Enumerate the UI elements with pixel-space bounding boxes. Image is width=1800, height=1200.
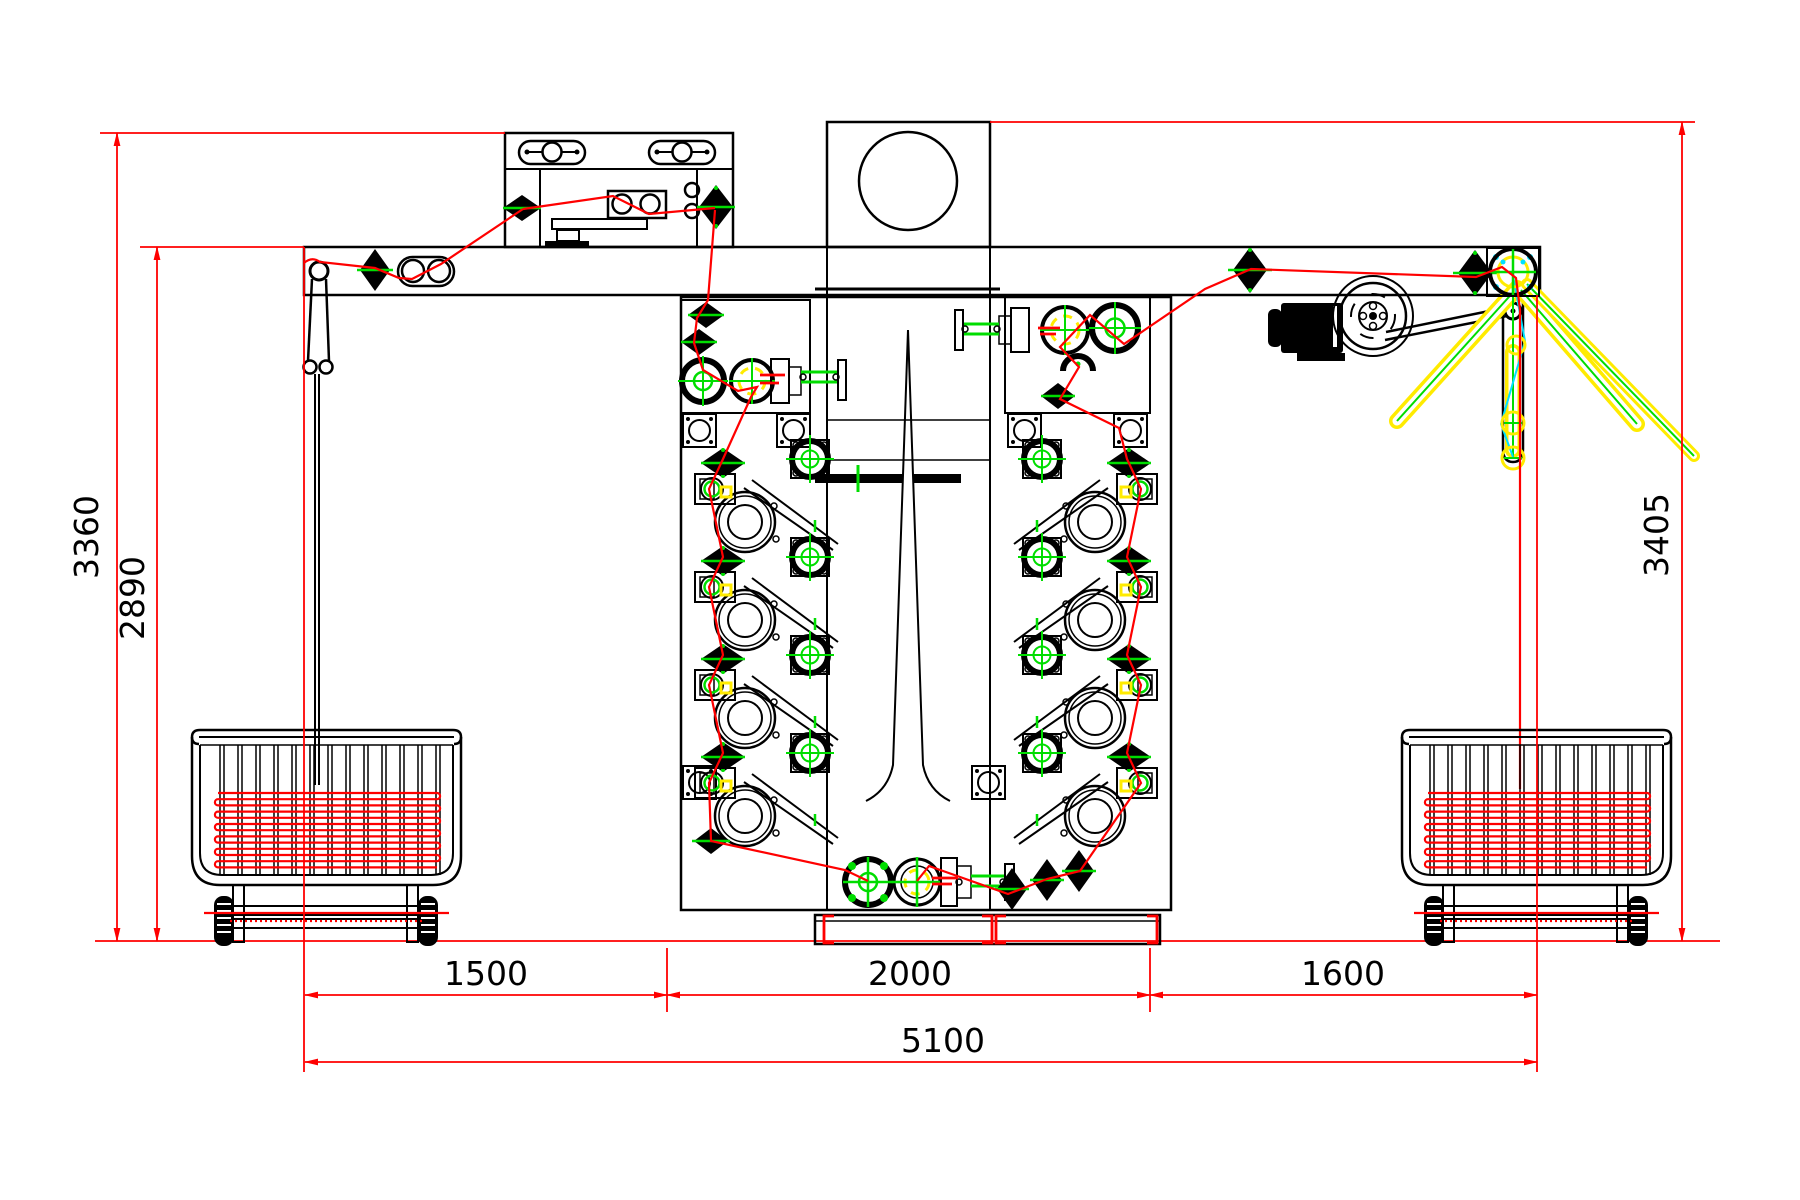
corner-pulley: [1487, 248, 1539, 296]
creel-box: [503, 133, 735, 247]
hanger-pole: [304, 262, 333, 785]
left-squeeze-unit: [678, 302, 846, 406]
machine-foot: [982, 916, 992, 943]
top-beam: [304, 247, 1540, 462]
right-squeeze-unit: [955, 302, 1141, 409]
machine-foot: [996, 916, 1006, 943]
dim-label-2000: 2000: [868, 954, 952, 993]
base-rail: [815, 915, 1160, 944]
drawing-page: 3360 2890 3405 1500 2000 1600 5100: [0, 0, 1800, 1200]
dim-label-5100: 5100: [901, 1021, 985, 1060]
left-cart: [192, 730, 461, 946]
dim-label-1500: 1500: [444, 954, 528, 993]
machine-elevation-drawing: 3360 2890 3405 1500 2000 1600 5100: [0, 0, 1800, 1200]
machine-foot: [1147, 916, 1157, 943]
fan-circle: [859, 132, 957, 230]
dim-label-3360: 3360: [67, 495, 106, 579]
machine-foot: [824, 916, 834, 943]
rope-path: [304, 196, 1520, 894]
dim-label-1600: 1600: [1301, 954, 1385, 993]
swing-arm-assembly: [1397, 276, 1694, 469]
dim-label-3405: 3405: [1637, 493, 1676, 577]
center-funnel: [866, 330, 908, 801]
dim-label-2890: 2890: [113, 556, 152, 640]
wash-rows: [695, 435, 1157, 846]
exhaust-chimney: [815, 122, 1000, 297]
